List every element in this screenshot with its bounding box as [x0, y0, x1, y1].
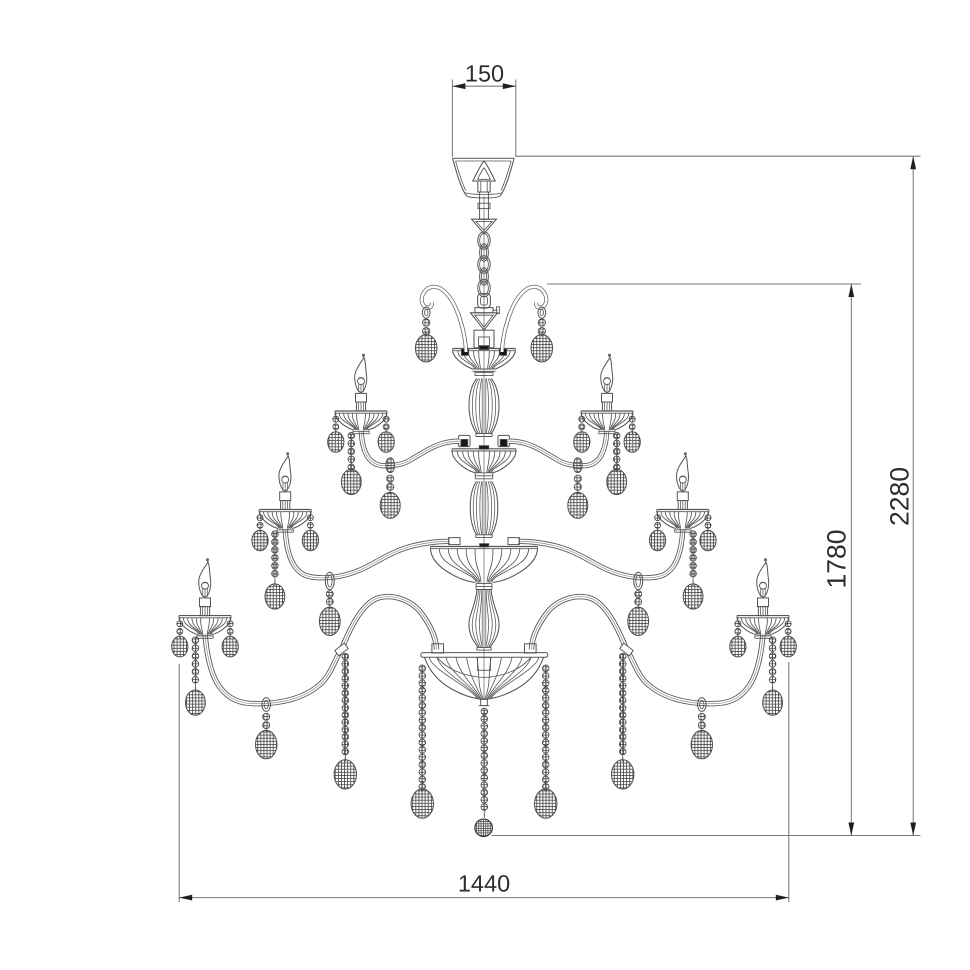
svg-text:2280: 2280 — [884, 467, 914, 526]
svg-text:1780: 1780 — [822, 530, 852, 589]
svg-text:150: 150 — [465, 61, 504, 87]
svg-text:1440: 1440 — [458, 871, 510, 897]
